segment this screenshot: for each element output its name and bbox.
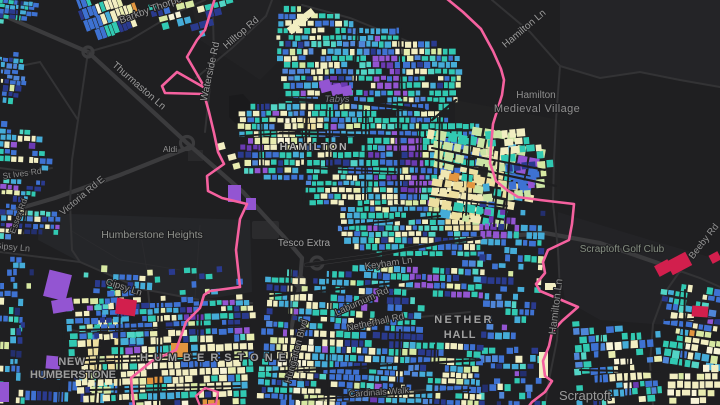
svg-text:Tabys: Tabys — [325, 94, 350, 105]
svg-text:Humberstone Heights: Humberstone Heights — [101, 229, 203, 241]
svg-text:HUMBERSTONE: HUMBERSTONE — [30, 369, 116, 381]
svg-text:Tesco Extra: Tesco Extra — [278, 238, 331, 249]
svg-text:Hamilton: Hamilton — [516, 90, 555, 101]
svg-text:Medieval Village: Medieval Village — [494, 103, 580, 115]
svg-text:NETHER: NETHER — [434, 314, 494, 326]
svg-text:Aldi: Aldi — [163, 144, 177, 154]
svg-text:HUMBERSTONE: HUMBERSTONE — [140, 352, 292, 364]
svg-text:NEW: NEW — [58, 356, 85, 368]
svg-text:HAMILTON: HAMILTON — [280, 141, 349, 153]
svg-text:HALL: HALL — [444, 329, 477, 341]
svg-text:Scraptoft Golf Club: Scraptoft Golf Club — [580, 244, 665, 255]
svg-text:Scraptoft: Scraptoft — [559, 388, 611, 403]
